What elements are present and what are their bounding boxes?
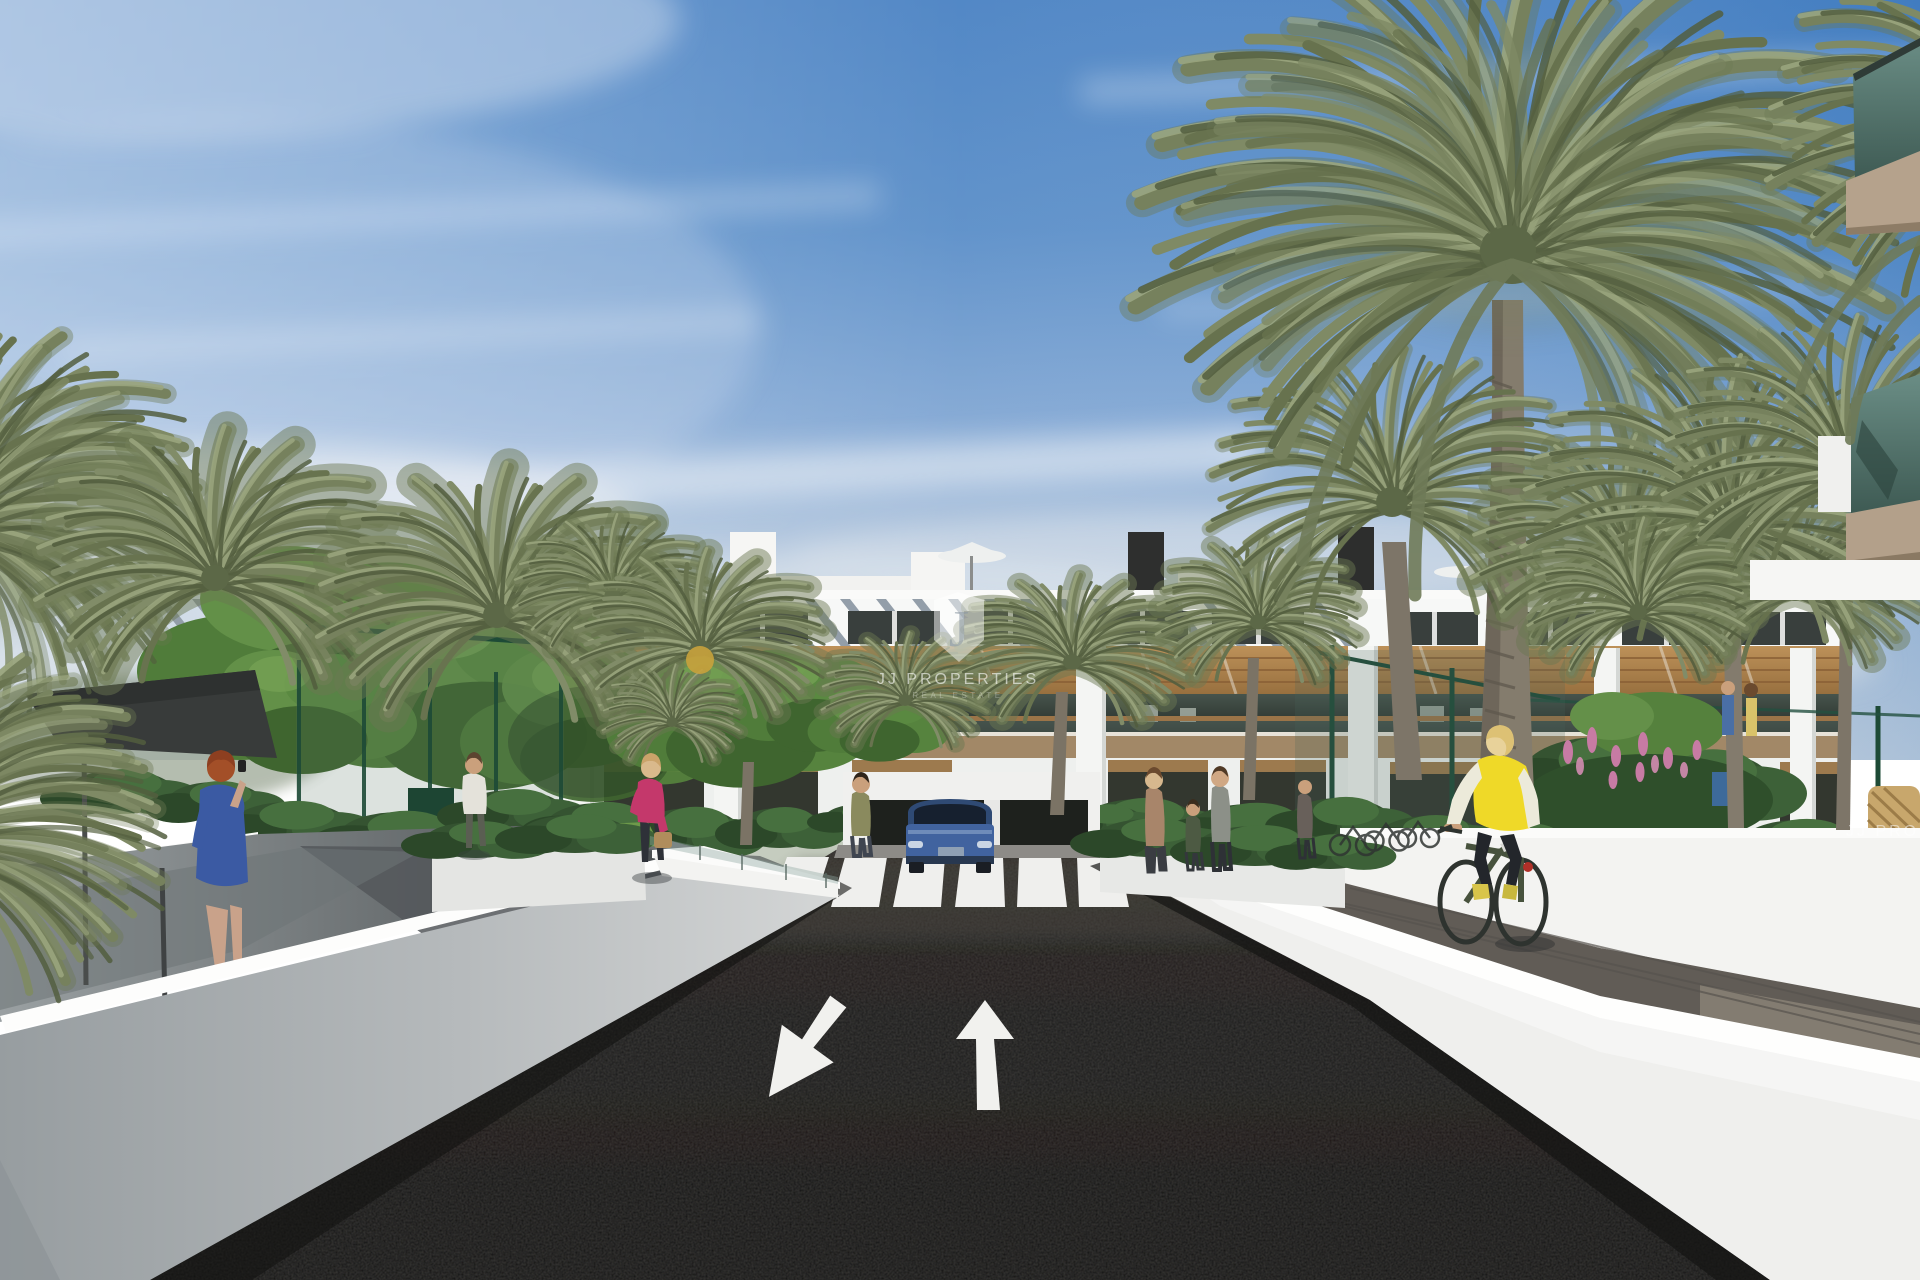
svg-text:JJ PROP: JJ PROP (1846, 823, 1920, 840)
svg-text:J: J (949, 601, 969, 658)
svg-text:REAL ESTATE: REAL ESTATE (912, 691, 1003, 700)
svg-text:JJ PROPERTIES: JJ PROPERTIES (877, 671, 1039, 688)
